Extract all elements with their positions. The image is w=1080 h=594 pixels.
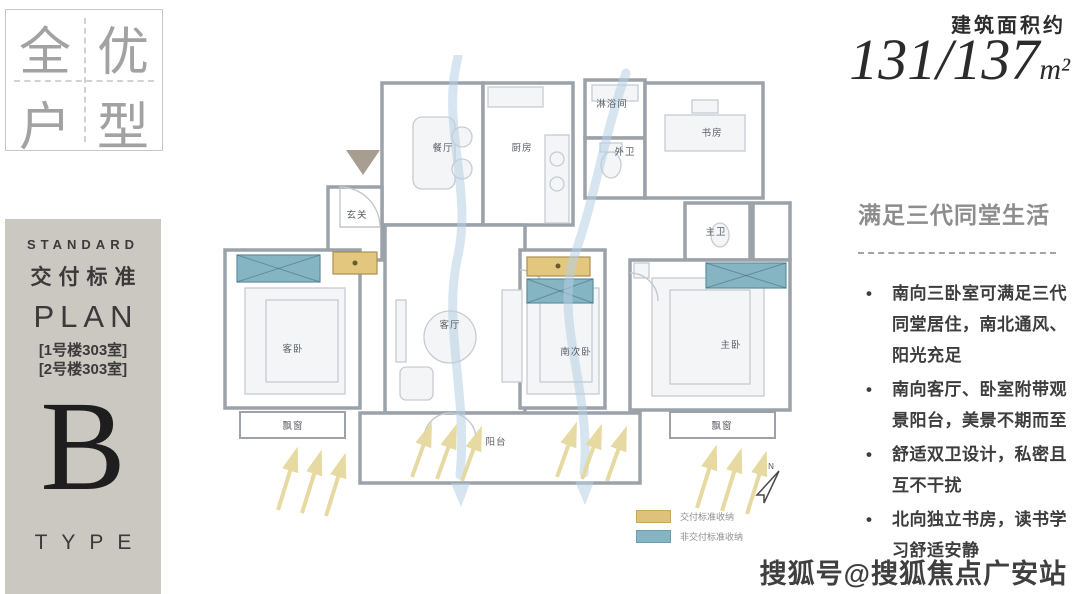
- room-label-bay-window-right: 飘窗: [711, 420, 732, 432]
- legend-label-non-standard: 非交付标准收纳: [680, 530, 743, 543]
- watermark: 搜狐号@搜狐焦点广安站: [760, 552, 1067, 591]
- panel-room-line-1: [1号楼303室]: [5, 341, 161, 360]
- room-label-master-bedroom: 主卧: [720, 339, 741, 351]
- room-label-kitchen: 厨房: [511, 142, 532, 154]
- logo-divider-horizontal: [14, 80, 154, 82]
- panel-room-numbers: [1号楼303室] [2号楼303室]: [5, 341, 161, 379]
- logo-char-2: 优: [84, 10, 162, 85]
- legend-label-standard: 交付标准收纳: [680, 510, 734, 523]
- area-unit: m²: [1039, 53, 1070, 86]
- selling-point-item: 舒适双卫设计，私密且互不干扰: [858, 439, 1070, 501]
- logo-box: 全 优 户 型: [5, 9, 163, 151]
- panel-type-letter: B: [5, 387, 161, 505]
- room-label-dining: 餐厅: [432, 142, 453, 154]
- selling-points-list: 南向三卧室可满足三代同堂居住，南北通风、阳光充足 南向客厅、卧室附带观景阳台，美…: [858, 278, 1070, 566]
- entrance-marker-icon: [346, 150, 380, 175]
- selling-points-heading: 满足三代同堂生活: [858, 196, 1070, 230]
- floor-plan: N 餐厅 厨房 淋浴间 外卫 书房 玄关 主卫 客卧 客厅 南次卧 主卧 飘窗 …: [200, 55, 820, 530]
- non-standard-storage-swatch: [636, 530, 671, 543]
- logo-char-1: 全: [6, 10, 84, 85]
- room-label-south-bedroom: 南次卧: [560, 346, 592, 358]
- room-label-balcony: 阳台: [485, 436, 506, 448]
- storage-legend: 交付标准收纳 非交付标准收纳: [636, 510, 743, 550]
- room-label-guest-bedroom: 客卧: [282, 343, 303, 355]
- svg-text:N: N: [768, 462, 774, 471]
- dashed-divider: [858, 252, 1056, 254]
- panel-type-label: TYPE: [5, 531, 161, 555]
- panel-plan-label: PLAN: [5, 299, 161, 335]
- selling-point-item: 南向客厅、卧室附带观景阳台，美景不期而至: [858, 374, 1070, 436]
- area-value: 131/137m²: [849, 26, 1070, 93]
- standard-plan-panel: STANDARD 交付标准 PLAN [1号楼303室] [2号楼303室] B…: [5, 219, 161, 594]
- selling-points: 满足三代同堂生活 南向三卧室可满足三代同堂居住，南北通风、阳光充足 南向客厅、卧…: [858, 196, 1070, 569]
- room-label-living: 客厅: [439, 319, 460, 331]
- panel-title-cn: 交付标准: [5, 261, 161, 291]
- legend-row-standard: 交付标准收纳: [636, 510, 743, 523]
- room-label-foyer: 玄关: [346, 209, 367, 221]
- room-label-master-bath: 主卫: [705, 226, 726, 238]
- panel-title-en: STANDARD: [5, 237, 161, 252]
- area-number: 131/137: [849, 27, 1039, 92]
- selling-point-item: 南向三卧室可满足三代同堂居住，南北通风、阳光充足: [858, 278, 1070, 371]
- room-label-study: 书房: [701, 127, 722, 139]
- standard-storage-swatch: [636, 510, 671, 523]
- logo-char-3: 户: [6, 85, 84, 160]
- legend-row-non-standard: 非交付标准收纳: [636, 530, 743, 543]
- logo-char-4: 型: [84, 85, 162, 160]
- room-label-shower: 淋浴间: [596, 98, 628, 110]
- room-label-bay-window-left: 飘窗: [282, 420, 303, 432]
- room-label-guest-wc: 外卫: [614, 146, 635, 158]
